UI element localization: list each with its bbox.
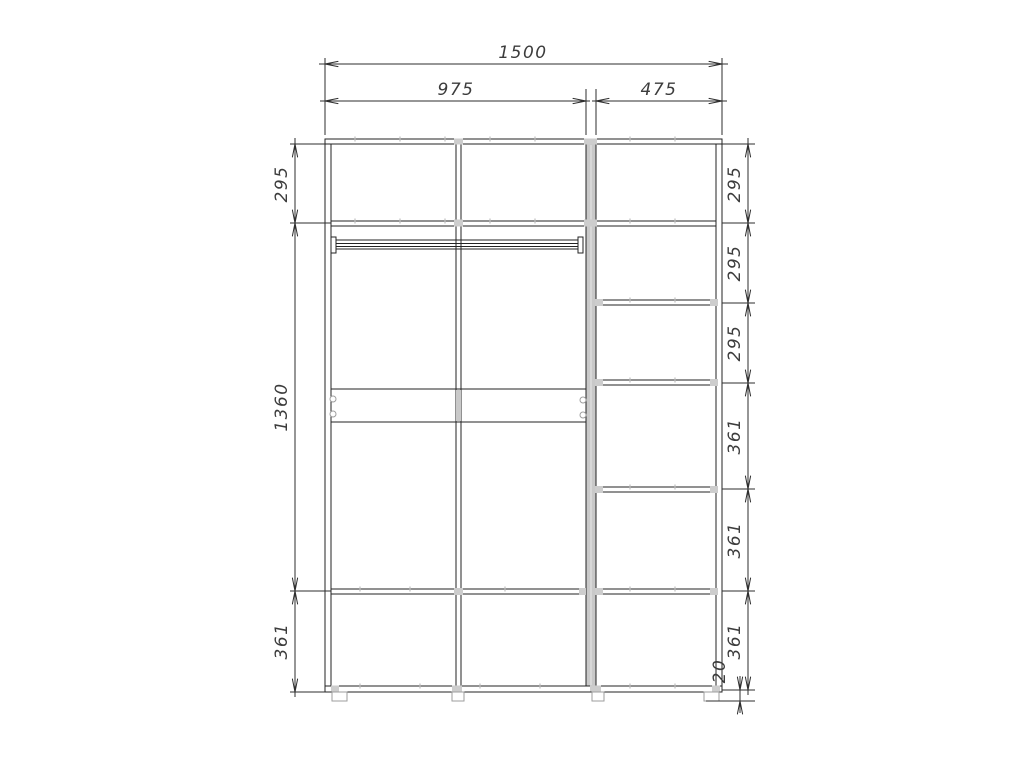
dimension-right-column: 295 295 295 361 361 361 <box>722 138 755 695</box>
cam-fitting-icon <box>580 397 586 403</box>
technical-drawing-canvas: 1500 975 475 295 1360 361 <box>0 0 1024 768</box>
dim-label-right-1: 295 <box>725 166 745 203</box>
foot <box>704 692 719 701</box>
dim-label-left-middle: 1360 <box>272 382 292 431</box>
foot <box>332 692 347 701</box>
dim-label-right-5: 361 <box>725 522 745 559</box>
cabinet-structure <box>325 139 722 692</box>
shelves <box>331 221 716 594</box>
dim-label-right-4: 361 <box>725 418 745 455</box>
dim-label-left-top: 295 <box>272 166 292 203</box>
rod-end-bracket <box>578 237 583 253</box>
foot <box>592 692 604 701</box>
dim-label-right-6: 361 <box>725 623 745 660</box>
edge-tick-marks <box>355 137 675 689</box>
cam-fitting-icon <box>580 412 586 418</box>
dim-label-base-height: 20 <box>710 659 730 684</box>
dim-label-right-3: 295 <box>725 325 745 362</box>
wardrobe-elevation-drawing: 1500 975 475 295 1360 361 <box>0 0 1024 768</box>
top-panel <box>325 139 722 144</box>
rod-end-bracket <box>331 237 336 253</box>
right-side-panel <box>716 144 722 686</box>
dim-label-right-2: 295 <box>725 245 745 282</box>
dimension-section-widths: 975 475 <box>320 80 727 135</box>
left-section-horizontal-rail <box>330 389 586 422</box>
foot <box>452 692 464 701</box>
dim-label-left-bottom: 361 <box>272 623 292 660</box>
bottom-panel <box>325 686 722 692</box>
dim-label-overall-width: 1500 <box>498 43 547 63</box>
dimension-left-column: 295 1360 361 <box>272 138 331 697</box>
adjustable-feet <box>332 692 719 701</box>
dim-label-right-section-width: 475 <box>641 80 678 100</box>
cam-fitting-icon <box>330 411 336 417</box>
dim-label-left-section-width: 975 <box>438 80 475 100</box>
cam-fitting-icon <box>330 396 336 402</box>
divider-behind-rail <box>456 390 461 421</box>
